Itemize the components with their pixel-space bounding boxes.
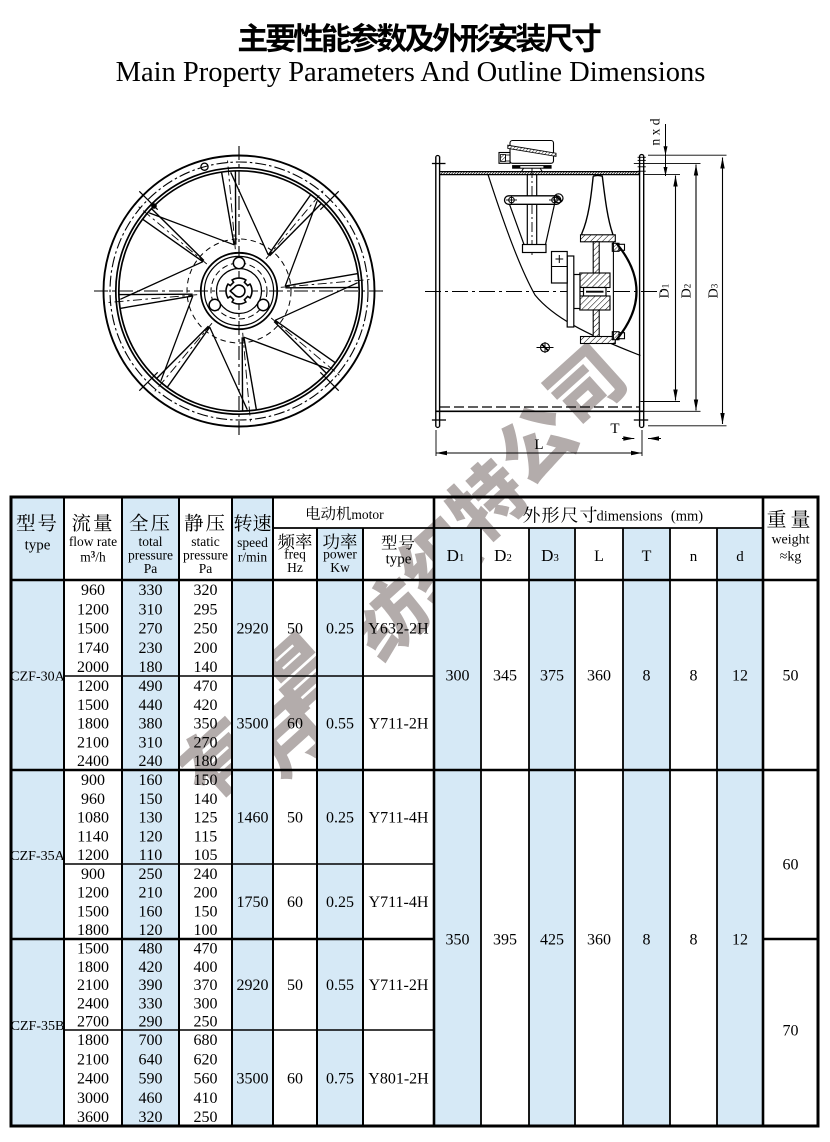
svg-text:3000: 3000 [77, 1090, 109, 1107]
svg-text:d: d [736, 549, 744, 565]
svg-text:60: 60 [287, 894, 303, 911]
svg-text:1800: 1800 [77, 959, 109, 976]
svg-text:2000: 2000 [77, 659, 109, 676]
svg-text:1200: 1200 [77, 601, 109, 618]
svg-text:150: 150 [194, 772, 218, 789]
svg-text:380: 380 [139, 716, 163, 733]
svg-text:345: 345 [493, 668, 517, 685]
svg-text:180: 180 [194, 753, 218, 770]
svg-text:3600: 3600 [77, 1109, 109, 1126]
svg-text:410: 410 [194, 1090, 218, 1107]
svg-text:Kw: Kw [330, 560, 350, 575]
svg-text:0.25: 0.25 [326, 810, 354, 827]
svg-text:1200: 1200 [77, 847, 109, 864]
svg-text:0.25: 0.25 [326, 894, 354, 911]
svg-text:200: 200 [194, 885, 218, 902]
svg-text:Pa: Pa [199, 561, 213, 576]
svg-text:type: type [25, 538, 51, 554]
svg-text:n x d: n x d [648, 118, 663, 145]
svg-text:130: 130 [139, 810, 163, 827]
svg-text:8: 8 [643, 932, 651, 949]
svg-text:T: T [610, 421, 619, 437]
svg-text:Y711-2H: Y711-2H [369, 716, 429, 733]
svg-text:2100: 2100 [77, 977, 109, 994]
svg-text:330: 330 [139, 995, 163, 1012]
svg-text:300: 300 [446, 668, 470, 685]
svg-text:115: 115 [194, 828, 217, 845]
svg-text:0.25: 0.25 [326, 621, 354, 638]
svg-text:2100: 2100 [77, 734, 109, 751]
svg-text:960: 960 [81, 582, 105, 599]
svg-text:12: 12 [732, 668, 748, 685]
svg-text:560: 560 [194, 1071, 218, 1088]
svg-text:D3: D3 [707, 283, 722, 298]
svg-text:270: 270 [139, 621, 163, 638]
svg-text:490: 490 [139, 678, 163, 695]
svg-text:900: 900 [81, 866, 105, 883]
svg-text:1500: 1500 [77, 621, 109, 638]
svg-text:1460: 1460 [237, 810, 269, 827]
svg-text:240: 240 [139, 753, 163, 770]
svg-text:D2: D2 [680, 284, 695, 299]
svg-text:1140: 1140 [77, 828, 108, 845]
svg-text:140: 140 [194, 791, 218, 808]
svg-text:360: 360 [587, 668, 611, 685]
svg-text:2920: 2920 [237, 621, 269, 638]
svg-text:590: 590 [139, 1071, 163, 1088]
svg-text:210: 210 [139, 885, 163, 902]
svg-text:8: 8 [643, 668, 651, 685]
svg-text:type: type [386, 552, 412, 568]
svg-text:Y711-2H: Y711-2H [369, 977, 429, 994]
svg-text:70: 70 [783, 1023, 799, 1040]
svg-text:1200: 1200 [77, 678, 109, 695]
svg-text:≈kg: ≈kg [780, 550, 802, 565]
svg-text:2400: 2400 [77, 995, 109, 1012]
svg-text:390: 390 [139, 977, 163, 994]
svg-text:Pa: Pa [144, 561, 158, 576]
svg-text:60: 60 [287, 716, 303, 733]
svg-text:flow rate: flow rate [69, 534, 117, 549]
svg-text:60: 60 [287, 1071, 303, 1088]
svg-text:460: 460 [139, 1090, 163, 1107]
svg-text:150: 150 [139, 791, 163, 808]
svg-text:470: 470 [194, 941, 218, 958]
svg-text:1500: 1500 [77, 941, 109, 958]
svg-text:60: 60 [783, 857, 799, 874]
svg-text:320: 320 [139, 1109, 163, 1126]
svg-text:420: 420 [139, 959, 163, 976]
svg-text:395: 395 [493, 932, 517, 949]
svg-text:150: 150 [194, 904, 218, 921]
svg-text:680: 680 [194, 1032, 218, 1049]
svg-text:120: 120 [139, 828, 163, 845]
svg-text:620: 620 [194, 1051, 218, 1068]
svg-text:110: 110 [139, 847, 162, 864]
svg-text:D1: D1 [658, 284, 673, 299]
svg-text:105: 105 [194, 847, 218, 864]
svg-text:250: 250 [194, 621, 218, 638]
svg-text:L: L [594, 548, 604, 565]
svg-text:125: 125 [194, 810, 218, 827]
svg-text:250: 250 [194, 1109, 218, 1126]
svg-text:375: 375 [540, 668, 564, 685]
svg-text:50: 50 [287, 977, 303, 994]
svg-text:350: 350 [194, 716, 218, 733]
svg-text:160: 160 [139, 772, 163, 789]
svg-text:960: 960 [81, 791, 105, 808]
svg-text:Y632-2H: Y632-2H [368, 621, 429, 638]
svg-text:0.55: 0.55 [326, 716, 354, 733]
svg-text:2700: 2700 [77, 1014, 109, 1031]
svg-text:360: 360 [587, 932, 611, 949]
svg-text:CZF-35A: CZF-35A [10, 849, 65, 864]
svg-text:295: 295 [194, 601, 218, 618]
svg-text:L: L [534, 437, 543, 453]
svg-text:370: 370 [194, 977, 218, 994]
svg-text:50: 50 [783, 668, 799, 685]
svg-text:12: 12 [732, 932, 748, 949]
svg-text:120: 120 [139, 922, 163, 939]
svg-text:1200: 1200 [77, 885, 109, 902]
svg-text:290: 290 [139, 1014, 163, 1031]
svg-text:700: 700 [139, 1032, 163, 1049]
svg-text:0.55: 0.55 [326, 977, 354, 994]
svg-text:T: T [642, 548, 652, 565]
svg-text:1080: 1080 [77, 810, 109, 827]
svg-text:400: 400 [194, 959, 218, 976]
svg-text:160: 160 [139, 904, 163, 921]
svg-text:250: 250 [194, 1014, 218, 1031]
svg-text:3500: 3500 [237, 1071, 269, 1088]
svg-text:420: 420 [194, 697, 218, 714]
svg-text:1500: 1500 [77, 697, 109, 714]
svg-text:weight: weight [771, 533, 809, 548]
svg-text:CZF-35B: CZF-35B [11, 1019, 65, 1034]
svg-text:230: 230 [139, 640, 163, 657]
svg-text:1800: 1800 [77, 922, 109, 939]
svg-text:dimensions: dimensions [596, 509, 662, 525]
svg-text:50: 50 [287, 810, 303, 827]
svg-text:2400: 2400 [77, 1071, 109, 1088]
svg-text:1800: 1800 [77, 1032, 109, 1049]
svg-text:440: 440 [139, 697, 163, 714]
svg-text:3500: 3500 [237, 716, 269, 733]
svg-text:Y801-2H: Y801-2H [368, 1071, 429, 1088]
svg-text:480: 480 [139, 941, 163, 958]
svg-text:speed: speed [237, 535, 268, 550]
svg-text:8: 8 [690, 932, 698, 949]
svg-text:250: 250 [139, 866, 163, 883]
svg-text:200: 200 [194, 640, 218, 657]
svg-text:(mm): (mm) [671, 509, 703, 525]
svg-text:330: 330 [139, 582, 163, 599]
svg-text:Hz: Hz [287, 560, 303, 575]
svg-text:310: 310 [139, 601, 163, 618]
svg-text:50: 50 [287, 621, 303, 638]
svg-text:8: 8 [690, 668, 698, 685]
svg-text:425: 425 [540, 932, 564, 949]
svg-text:motor: motor [351, 507, 384, 522]
svg-text:180: 180 [139, 659, 163, 676]
svg-text:Y711-4H: Y711-4H [369, 810, 429, 827]
svg-text:0.75: 0.75 [326, 1071, 354, 1088]
svg-text:r/min: r/min [238, 550, 267, 565]
svg-text:1740: 1740 [77, 640, 109, 657]
svg-text:140: 140 [194, 659, 218, 676]
svg-text:470: 470 [194, 678, 218, 695]
svg-text:D2: D2 [494, 546, 512, 565]
svg-text:Y711-4H: Y711-4H [369, 894, 429, 911]
svg-text:m3/h: m3/h [80, 550, 106, 565]
svg-text:2920: 2920 [237, 977, 269, 994]
svg-text:310: 310 [139, 734, 163, 751]
svg-text:2100: 2100 [77, 1051, 109, 1068]
svg-text:300: 300 [194, 995, 218, 1012]
svg-text:270: 270 [194, 734, 218, 751]
svg-text:CZF-30A: CZF-30A [10, 670, 65, 685]
svg-text:900: 900 [81, 772, 105, 789]
svg-text:n: n [690, 549, 698, 565]
svg-text:640: 640 [139, 1051, 163, 1068]
svg-text:100: 100 [194, 922, 218, 939]
svg-text:350: 350 [446, 932, 470, 949]
svg-text:320: 320 [194, 582, 218, 599]
svg-text:2400: 2400 [77, 753, 109, 770]
svg-text:240: 240 [194, 866, 218, 883]
svg-text:1750: 1750 [237, 894, 269, 911]
svg-text:1800: 1800 [77, 716, 109, 733]
svg-text:1500: 1500 [77, 904, 109, 921]
